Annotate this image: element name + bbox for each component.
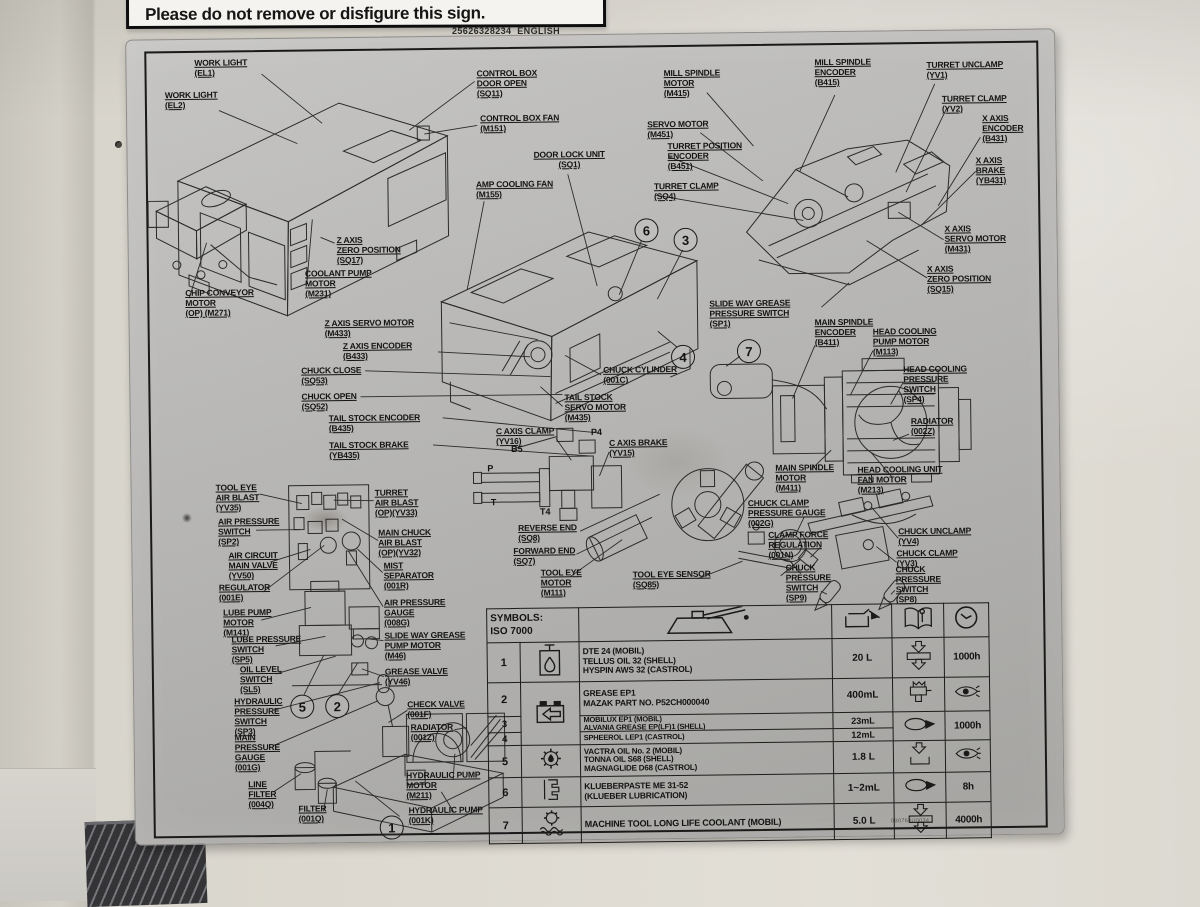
lubrication-table: SYMBOLS: ISO 7000 bbox=[486, 602, 992, 844]
label-mist-separator: MIST SEPARATOR (001R) bbox=[383, 560, 434, 591]
lubricant-header-cell bbox=[579, 605, 832, 642]
interval-cell bbox=[944, 677, 989, 712]
label-lube-pressure-switch: LUBE PRESSURE SWITCH (SP5) bbox=[231, 634, 301, 665]
method-cell bbox=[892, 637, 944, 678]
plate-inner-border: WORK LIGHT (EL1) WORK LIGHT (EL2) CONTRO… bbox=[144, 41, 1048, 839]
label-reverse-end: REVERSE END (SQ8) bbox=[518, 522, 577, 543]
label-hydraulic-pump-motor: HYDRAULIC PUMP MOTOR (M211) bbox=[406, 769, 481, 800]
label-line-filter: LINE FILTER (004Q) bbox=[248, 779, 276, 809]
label-coolant-pump-motor: COOLANT PUMP MOTOR (M231) bbox=[305, 268, 372, 299]
quantity: 20 L bbox=[832, 638, 892, 679]
label-x-axis-zero-position: X AXIS ZERO POSITION (SQ15) bbox=[927, 263, 991, 294]
oil-can-icon bbox=[646, 606, 764, 635]
label-chip-conveyor-motor: CHIP CONVEYOR MOTOR (OP) (M271) bbox=[185, 287, 254, 318]
row-number: 5 bbox=[488, 745, 521, 777]
label-tool-eye-air-blast: TOOL EYE AIR BLAST (YV35) bbox=[216, 482, 260, 513]
machine-id-plate: WORK LIGHT (EL1) WORK LIGHT (EL2) CONTRO… bbox=[125, 28, 1065, 845]
grease-symbol-cell bbox=[520, 682, 580, 746]
slideway-symbol-cell bbox=[521, 745, 580, 778]
label-hydraulic-pump: HYDRAULIC PUMP (001K) bbox=[408, 804, 482, 825]
turret-assembly-drawing bbox=[745, 140, 951, 286]
wall-lower-panel bbox=[0, 768, 96, 901]
label-tail-stock-brake: TAIL STOCK BRAKE (YB435) bbox=[329, 439, 409, 460]
table-row: 2 GREASE EP1 MAZAK PART NO. P52CH000040 … bbox=[487, 677, 989, 717]
label-turret-clamp-yv2: TURRET CLAMP (YV2) bbox=[942, 93, 1007, 114]
row-number: 7 bbox=[489, 807, 522, 843]
label-servo-motor: SERVO MOTOR (M451) bbox=[647, 119, 708, 140]
label-main-chuck-air-blast: MAIN CHUCK AIR BLAST (OP)(YV32) bbox=[378, 527, 431, 558]
quantity: 1~2mL bbox=[834, 773, 894, 804]
row-number: 1 bbox=[487, 642, 520, 682]
label-tail-stock-servo-motor: TAIL STOCK SERVO MOTOR (M435) bbox=[564, 392, 626, 423]
label-control-box-fan: CONTROL BOX FAN (M151) bbox=[480, 112, 559, 133]
lubricant-name: DTE 24 (MOBIL) TELLUS OIL 32 (SHELL) HYS… bbox=[579, 639, 832, 682]
label-head-cooling-pressure-switch: HEAD COOLING PRESSURE SWITCH (SP4) bbox=[903, 363, 967, 404]
callout-6: 6 bbox=[634, 218, 658, 242]
spline-symbol-cell bbox=[522, 777, 581, 808]
label-turret-position-encoder: TURRET POSITION ENCODER (B451) bbox=[667, 140, 742, 171]
label-z-axis-zero-position: Z AXIS ZERO POSITION (SQ17) bbox=[337, 234, 401, 265]
label-filter: FILTER (001Q) bbox=[298, 803, 326, 823]
method-cell bbox=[893, 740, 945, 773]
oil-reservoir-symbol-cell bbox=[520, 642, 579, 683]
label-forward-end: FORWARD END (SQ7) bbox=[513, 545, 575, 566]
symbols-header: SYMBOLS: ISO 7000 bbox=[487, 608, 579, 643]
label-head-cooling-unit-fan-motor: HEAD COOLING UNIT FAN MOTOR (M213) bbox=[857, 464, 942, 495]
label-chuck-close: CHUCK CLOSE (SQ53) bbox=[301, 365, 361, 386]
label-chuck-cylinder: CHUCK CYLINDER (001C) bbox=[603, 364, 677, 385]
quantity: 23mL bbox=[833, 712, 893, 729]
label-air-pressure-gauge: AIR PRESSURE GAUGE (008G) bbox=[384, 597, 446, 628]
lubricant-name: GREASE EP1 MAZAK PART NO. P52CH000040 bbox=[579, 679, 832, 716]
interval: 1000h bbox=[945, 711, 990, 741]
label-mill-spindle-encoder: MILL SPINDLE ENCODER (B415) bbox=[814, 57, 871, 88]
label-mill-spindle-motor: MILL SPINDLE MOTOR (M415) bbox=[663, 67, 720, 98]
label-clamp-force-regulation: CLAMP FORCE REGULATION (001N) bbox=[768, 529, 828, 560]
quantity: 5.0 L bbox=[834, 803, 894, 840]
label-amp-cooling-fan: AMP COOLING FAN (M155) bbox=[476, 178, 553, 199]
grease-gun-icon bbox=[905, 678, 931, 706]
label-work-light-el2: WORK LIGHT (EL2) bbox=[165, 90, 218, 111]
wall-screw bbox=[115, 141, 122, 148]
port-label-b5: B5 bbox=[511, 444, 523, 454]
label-x-axis-encoder: X AXIS ENCODER (B431) bbox=[982, 113, 1023, 144]
manual-book-icon bbox=[900, 605, 936, 631]
callout-1: 1 bbox=[380, 815, 404, 839]
eye-check-icon bbox=[955, 743, 981, 763]
label-main-spindle-encoder: MAIN SPINDLE ENCODER (B411) bbox=[815, 317, 874, 348]
label-chuck-unclamp: CHUCK UNCLAMP (YV4) bbox=[898, 525, 971, 546]
label-chuck-open: CHUCK OPEN (SQ52) bbox=[301, 391, 356, 412]
label-check-valve: CHECK VALVE (001F) bbox=[407, 699, 465, 720]
warning-sign-text: Please do not remove or disfigure this s… bbox=[129, 3, 485, 26]
warning-sign: Please do not remove or disfigure this s… bbox=[126, 0, 606, 29]
port-label-p4: P4 bbox=[591, 427, 602, 437]
label-chuck-pressure-switch-sp9: CHUCK PRESSURE SWITCH (SP9) bbox=[786, 562, 832, 603]
label-z-axis-encoder: Z AXIS ENCODER (B433) bbox=[343, 340, 412, 361]
lubricant-name: MACHINE TOOL LONG LIFE COOLANT (MOBIL) bbox=[581, 804, 834, 843]
quantity: 12mL bbox=[833, 728, 893, 742]
label-oil-level-switch: OIL LEVEL SWITCH (SL5) bbox=[240, 664, 282, 695]
clock-icon bbox=[953, 604, 979, 630]
label-tool-eye-sensor: TOOL EYE SENSOR (SQ85) bbox=[633, 569, 711, 590]
label-regulator: REGULATOR (001E) bbox=[219, 582, 270, 603]
cartridge-icon bbox=[903, 777, 937, 793]
label-main-spindle-motor: MAIN SPINDLE MOTOR (M411) bbox=[775, 462, 834, 493]
label-slide-way-grease-pump-motor: SLIDE WAY GREASE PUMP MOTOR (M46) bbox=[384, 630, 465, 661]
interval: 4000h bbox=[946, 802, 991, 839]
quantity: 1.8 L bbox=[833, 741, 893, 774]
label-x-axis-brake: X AXIS BRAKE (YB431) bbox=[976, 155, 1007, 185]
drain-refill-icon bbox=[905, 640, 931, 670]
method-cell bbox=[894, 772, 946, 803]
interval: 1000h bbox=[944, 637, 989, 678]
row-number: 2 bbox=[487, 682, 520, 716]
method-cell bbox=[892, 677, 944, 712]
label-tool-eye-motor: TOOL EYE MOTOR (M111) bbox=[541, 567, 582, 598]
label-hydraulic-pressure-switch: HYDRAULIC PRESSURE SWITCH (SP3) bbox=[234, 696, 283, 737]
pneumatic-panel-drawing bbox=[289, 485, 382, 686]
label-door-lock-unit: DOOR LOCK UNIT (SQ1) bbox=[533, 149, 605, 170]
manual-header-cell bbox=[892, 603, 944, 638]
label-turret-air-blast: TURRET AIR BLAST (OP)(YV33) bbox=[375, 487, 419, 518]
label-air-pressure-switch: AIR PRESSURE SWITCH (SP2) bbox=[218, 516, 280, 547]
row-number: 3 bbox=[488, 716, 521, 732]
lubricant-name: KLUEBERPASTE ME 31-52 (KLUEBER LUBRICATI… bbox=[581, 774, 834, 807]
label-chuck-pressure-switch-sp8: CHUCK PRESSURE SWITCH (SP8) bbox=[896, 564, 942, 605]
method-cell bbox=[893, 711, 945, 741]
label-chuck-clamp-pressure-gauge: CHUCK CLAMP PRESSURE GAUGE (002G) bbox=[748, 497, 826, 528]
callout-3: 3 bbox=[673, 228, 697, 252]
pour-in-icon bbox=[907, 741, 931, 767]
label-work-light-el1: WORK LIGHT (EL1) bbox=[194, 57, 247, 78]
grease-coupler-icon bbox=[533, 697, 567, 725]
interval: 8h bbox=[946, 772, 991, 803]
label-z-axis-servo-motor: Z AXIS SERVO MOTOR (M433) bbox=[325, 317, 415, 338]
coolant-symbol-cell bbox=[522, 807, 581, 844]
port-label-t4: T4 bbox=[540, 507, 551, 517]
label-tail-stock-encoder: TAIL STOCK ENCODER (B435) bbox=[329, 412, 421, 433]
table-row: 5 VACTRA OIL No. 2 (MOBIL) TONNA OIL S68… bbox=[488, 740, 990, 778]
quantity: 400mL bbox=[832, 678, 892, 713]
label-radiator-002z: RADIATOR (002Z) bbox=[911, 416, 954, 437]
oil-reservoir-icon bbox=[537, 642, 563, 676]
port-label-p: P bbox=[487, 463, 493, 473]
capacity-header-cell bbox=[832, 604, 892, 639]
callout-4: 4 bbox=[671, 345, 695, 369]
port-label-t: T bbox=[491, 497, 497, 507]
spline-profile-icon bbox=[540, 777, 562, 801]
label-x-axis-servo-motor: X AXIS SERVO MOTOR (M431) bbox=[944, 223, 1006, 254]
callout-5: 5 bbox=[290, 694, 314, 718]
label-control-box-door-open: CONTROL BOX DOOR OPEN (SQ11) bbox=[476, 68, 537, 99]
label-radiator-001z: RADIATOR (001Z) bbox=[410, 722, 453, 743]
label-slide-way-grease-pressure-switch: SLIDE WAY GREASE PRESSURE SWITCH (SP1) bbox=[709, 298, 790, 329]
table-row: 1 DTE 24 (MOBIL) TELLUS OIL 32 (SHELL) H… bbox=[487, 637, 989, 683]
cartridge-icon bbox=[902, 715, 936, 731]
photo-of-machine-plate: { "top_sign": { "text": "Please do not r… bbox=[0, 0, 1200, 900]
label-head-cooling-pump-motor: HEAD COOLING PUMP MOTOR (M113) bbox=[873, 326, 937, 357]
gear-oil-drop-icon bbox=[538, 745, 564, 771]
callout-7: 7 bbox=[737, 339, 761, 363]
label-turret-unclamp: TURRET UNCLAMP (YV1) bbox=[926, 59, 1003, 80]
label-air-circuit-main-valve: AIR CIRCUIT MAIN VALVE (YV50) bbox=[228, 550, 278, 581]
coolant-icon bbox=[539, 809, 565, 835]
label-lube-pump-motor: LUBE PUMP MOTOR (M141) bbox=[223, 607, 272, 638]
label-c-axis-clamp: C AXIS CLAMP (YV16) bbox=[496, 425, 554, 446]
row-number: 4 bbox=[488, 732, 521, 745]
label-main-pressure-gauge: MAIN PRESSURE GAUGE (001G) bbox=[235, 732, 281, 773]
label-c-axis-brake: C AXIS BRAKE (YV15) bbox=[609, 437, 667, 458]
callout-2: 2 bbox=[325, 694, 349, 718]
label-grease-valve: GREASE VALVE (YV46) bbox=[385, 666, 448, 687]
plate-part-number: 0B0760U0034 bbox=[891, 818, 930, 824]
capacity-icon bbox=[841, 605, 883, 632]
eye-check-icon bbox=[954, 681, 980, 701]
interval-cell bbox=[945, 740, 990, 773]
clock-header-cell bbox=[944, 603, 989, 638]
row-number: 6 bbox=[489, 777, 522, 807]
label-turret-clamp-sq4: TURRET CLAMP (SQ4) bbox=[654, 180, 719, 201]
lubricant-name: VACTRA OIL No. 2 (MOBIL) TONNA OIL S68 (… bbox=[580, 742, 833, 777]
